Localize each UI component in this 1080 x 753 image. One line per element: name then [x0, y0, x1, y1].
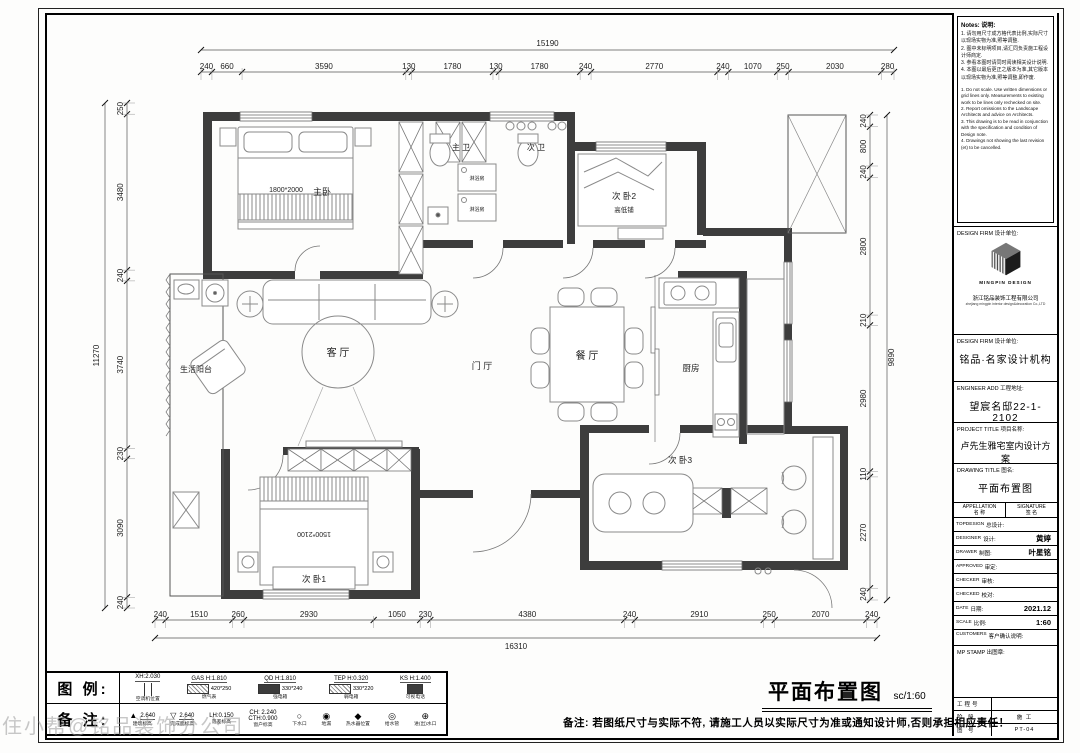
firm-label: DESIGN FIRM 设计单位:: [957, 339, 1018, 345]
room-label-dining: 餐 厅: [576, 349, 599, 362]
drawing-footer-title: 平面布置图 sc/1:60: [762, 676, 932, 712]
dim-label: 11270: [92, 344, 101, 366]
legend-item-label: 可视电话: [406, 695, 425, 700]
legend-item: ◆热水器位置: [346, 711, 370, 727]
legend-item: QD H:1.810330*240强电箱: [258, 676, 303, 701]
signature-row-customers: CUSTOMERS客户确认说明:: [954, 629, 1057, 645]
room-label-hall: 门 厅: [472, 360, 493, 371]
dim-label: 2910: [690, 610, 708, 619]
note-line: 1. 请勿用尺寸成方格代表比例,实际尺寸以现场实物为准,照等调整.: [961, 31, 1050, 46]
stamp-box: MP STAMP 出图章:: [954, 645, 1057, 697]
valve-icon: ⊕: [422, 712, 430, 721]
dim-chain: 2406603590130178013017802402770240107025…: [198, 39, 897, 80]
logo-text: MINGPIN DESIGN: [957, 280, 1054, 285]
dim-label: 240: [865, 610, 879, 619]
dim-label: 15190: [536, 39, 559, 48]
dim-label: 240: [200, 62, 214, 71]
note-line: 4. 本图以最后更正之版本为准,其它版本以现场实物为准,照等调整,即作废.: [961, 67, 1050, 82]
note-line: 1. Do not scale. Use written dimensions …: [961, 87, 1050, 106]
mingpin-logo-icon: [987, 241, 1025, 277]
dim-label: 250: [116, 101, 125, 115]
dim-label: 1780: [443, 62, 461, 71]
legend-item-label: 燃气表: [202, 695, 216, 700]
dim-label: 9890: [887, 348, 896, 366]
notes-title: Notes: 说明:: [961, 20, 1050, 29]
legend-label: 图 例:: [47, 673, 120, 703]
legend-item-label: 下水口: [292, 722, 306, 727]
circle-dot-icon: ◉: [322, 712, 330, 721]
room-label-master-bed-size: 1800*2000: [269, 187, 303, 194]
project-row: PROJECT TITLE 项目名称: 卢先生雅宅室内设计方案: [954, 422, 1057, 463]
address-label: ENGINEER ADD 工程地址:: [957, 386, 1024, 392]
room-label-balcony: 生活阳台: [180, 364, 212, 374]
legend-item: ◎给水管: [385, 711, 399, 727]
dim-label: 2770: [645, 62, 663, 71]
legend-item: ◉地漏: [322, 711, 332, 727]
title-block: Notes: 说明: 1. 请勿用尺寸成方格代表比例,实际尺寸以现场实物为准,照…: [952, 13, 1057, 736]
signature-row-drawer: DRAWER制图:叶星铭: [954, 545, 1057, 559]
room-label-bed1-size: 1500*2100: [297, 530, 331, 537]
dim-label: 240: [116, 595, 125, 609]
sheet-number-row: 工程号: [954, 698, 1057, 711]
legend-item: KS H:1.400可视电话: [400, 676, 431, 701]
dim-label: 240: [623, 610, 637, 619]
legend-item: ⊕进(出)水口: [414, 711, 436, 727]
signature-row-topdesign: TOPDESIGN总设计:: [954, 517, 1057, 531]
dim-label: 2980: [859, 389, 868, 407]
legend-items: XH:2.030空调机位置GAS H:1.810420*250燃气表QD H:1…: [120, 674, 446, 702]
diamond-icon: ◆: [355, 712, 362, 721]
kitchen-fixtures: [659, 278, 739, 437]
design-firm-logo-section: DESIGN FIRM 设计单位: MINGPIN DESIGN 浙江铭品装饰工…: [954, 226, 1057, 334]
legend-item-label: 强电箱: [273, 695, 287, 700]
legend-item-label: 窗户标高: [253, 723, 272, 728]
note-line: 2. 图中未标明项目,请汇同负责施工程设计师商定.: [961, 46, 1050, 61]
stamp-label: MP STAMP 出图章:: [957, 650, 1005, 656]
room-label-bed1: 次 卧1: [302, 574, 326, 584]
dim-label: 240: [859, 587, 868, 601]
firm-row: DESIGN FIRM 设计单位: 铭品·名家设计机构: [954, 334, 1057, 381]
drawing-title-row: DRAWING TITLE 图名: 平面布置图: [954, 463, 1057, 502]
legend-item: ○下水口: [292, 711, 306, 727]
dimension-chains: 2406603590130178013017802402770240107025…: [92, 39, 897, 651]
floor-plan-svg: 1800*2000 主卧 主 卫 次 卫 淋浴房 淋浴房 次 卧2 高低铺 生活…: [58, 22, 948, 667]
room-label-shower1: 淋浴房: [469, 175, 484, 182]
dim-label: 240: [579, 62, 593, 71]
signature-row-checked: CHECKED校对:: [954, 587, 1057, 601]
signature-row-checker: CHECKER审核:: [954, 573, 1057, 587]
drawing-sheet: 1800*2000 主卧 主 卫 次 卫 淋浴房 淋浴房 次 卧2 高低铺 生活…: [0, 0, 1080, 753]
dim-label: 1070: [744, 62, 762, 71]
company-name-cn: 浙江铭品装饰工程有限公司: [957, 294, 1054, 302]
dim-label: 130: [402, 62, 416, 71]
dim-label: 1050: [388, 610, 406, 619]
project-label: PROJECT TITLE 项目名称:: [957, 427, 1024, 433]
dim-label: 250: [763, 610, 777, 619]
dim-label: 1780: [531, 62, 549, 71]
room-label-master: 主卧: [313, 186, 331, 197]
dim-label: 2270: [859, 523, 868, 541]
note-line: 2. Report omissions to the Landscape Arc…: [961, 106, 1050, 119]
darkbox-icon: [258, 684, 280, 694]
notes-box: Notes: 说明: 1. 请勿用尺寸成方格代表比例,实际尺寸以现场实物为准,照…: [957, 16, 1054, 223]
legend-item: GAS H:1.810420*250燃气表: [187, 676, 232, 701]
signature-row-approved: APPROVED审定:: [954, 559, 1057, 573]
legend-item: TEP H:0.320330*220弱电箱: [329, 676, 374, 701]
signature-cn: 签 名: [1026, 510, 1037, 516]
room-label-bunk: 高低铺: [614, 205, 634, 214]
room-label-bath2: 次 卫: [527, 142, 545, 152]
dim-label: 2070: [812, 610, 830, 619]
room-label-bed2: 次 卧2: [612, 191, 636, 201]
dim-label: 280: [881, 62, 895, 71]
legend-item-label: 地漏: [322, 722, 332, 727]
room-label-bed3: 次 卧3: [668, 455, 692, 465]
appellation-cn: 名 称: [974, 510, 985, 516]
circle-open-icon: ○: [297, 712, 302, 721]
notes-cn: 1. 请勿用尺寸成方格代表比例,实际尺寸以现场实物为准,照等调整.2. 图中未标…: [961, 31, 1050, 82]
dim-label: 260: [232, 610, 246, 619]
dim-label: 1510: [190, 610, 208, 619]
room-label-shower2: 淋浴房: [469, 206, 484, 213]
dim-label: 16310: [505, 642, 528, 651]
design-firm-label: DESIGN FIRM: [957, 231, 993, 237]
dim-label: 110: [859, 467, 868, 480]
signature-header: APPELLATION名 称 SIGNATURE签 名: [954, 502, 1057, 517]
dim-label: 3590: [315, 62, 333, 71]
note-line: 4. Drawings not showing the last revisio…: [961, 138, 1050, 151]
signature-rows: TOPDESIGN总设计:DESIGNER设计:黄婷DRAWER制图:叶星铭AP…: [954, 517, 1057, 645]
dim-label: 230: [419, 610, 433, 619]
footer-title-text: 平面布置图: [768, 680, 883, 704]
watermark: 住小帮@铭品装饰分公司: [2, 710, 244, 739]
bathroom-fixtures: [428, 122, 566, 224]
dim-label: 240: [116, 268, 125, 282]
master-bed: [220, 127, 371, 229]
hatchbox-icon: [187, 684, 209, 694]
room-label-kitchen: 厨房: [682, 363, 699, 373]
drawing-title-value: 平面布置图: [957, 480, 1054, 495]
note-line: 3. This drawing is to be read in conjunc…: [961, 119, 1050, 138]
footer-remark: 备注: 若图纸尺寸与实际不符, 请施工人员以实际尺寸为准或通知设计师,否则承担相…: [563, 715, 1010, 730]
firm-value: 铭品·名家设计机构: [957, 351, 1054, 366]
dim-chain: 25034802403740230309024011270: [92, 100, 135, 611]
drawing-title-label: DRAWING TITLE 图名:: [957, 468, 1014, 474]
dim-chain: 2401510260293010502304380240291025020702…: [152, 610, 880, 651]
dim-label: 240: [859, 114, 868, 128]
dim-label: 210: [859, 313, 868, 327]
dim-label: 240: [154, 610, 168, 619]
dim-label: 3740: [116, 355, 125, 373]
dim-chain: 2408002402800210298011022702409890: [859, 112, 896, 603]
legend-item-label: 空调机位置: [136, 697, 160, 702]
dim-label: 3090: [116, 519, 125, 537]
dim-label: 2930: [300, 610, 318, 619]
legend-item: XH:2.030空调机位置: [135, 674, 160, 702]
legend-item-label: 进(出)水口: [414, 722, 436, 727]
legend-item-label: 弱电箱: [344, 695, 358, 700]
legend-item: CH: 2.240CTH:0.900窗户标高: [248, 710, 277, 728]
company-name-en: zhejiang mingpin interior design&decorat…: [962, 302, 1049, 306]
dim-label: 240: [716, 62, 730, 71]
dim-label: 130: [489, 62, 503, 71]
footer-scale: sc/1:60: [893, 691, 925, 702]
signature-row-designer: DESIGNER设计:黄婷: [954, 531, 1057, 545]
room-label-living: 客 厅: [327, 346, 350, 359]
legend-item-label: 热水器位置: [346, 722, 370, 727]
room-label-bath1: 主 卫: [452, 142, 470, 152]
dim-label: 4380: [518, 610, 536, 619]
dim-label: 230: [116, 446, 125, 460]
design-firm-cn: 设计单位:: [995, 231, 1019, 237]
signature-row-date: DATE日期:2021.12: [954, 601, 1057, 615]
dim-label: 660: [220, 62, 234, 71]
address-row: ENGINEER ADD 工程地址: 望宸名邸22-1-2102: [954, 381, 1057, 422]
balcony-fixtures: [173, 280, 228, 528]
dim-label: 240: [859, 165, 868, 179]
dim-label: 800: [859, 139, 868, 153]
address-value: 望宸名邸22-1-2102: [957, 398, 1054, 422]
hatchbox-icon: [329, 684, 351, 694]
dim-label: 250: [776, 62, 790, 71]
notes-en: 1. Do not scale. Use written dimensions …: [961, 87, 1050, 151]
circle-c-icon: ◎: [388, 712, 396, 721]
project-value: 卢先生雅宅室内设计方案: [957, 439, 1054, 463]
ac-icon: [144, 683, 152, 696]
signature-row-scale: SCALE比例:1:60: [954, 615, 1057, 629]
dim-label: 3480: [116, 183, 125, 201]
legend-item-label: 给水管: [385, 722, 399, 727]
dim-label: 2030: [826, 62, 844, 71]
living-furniture: [189, 280, 458, 447]
dim-label: 2800: [859, 237, 868, 255]
darkbox-small-icon: [407, 684, 423, 694]
